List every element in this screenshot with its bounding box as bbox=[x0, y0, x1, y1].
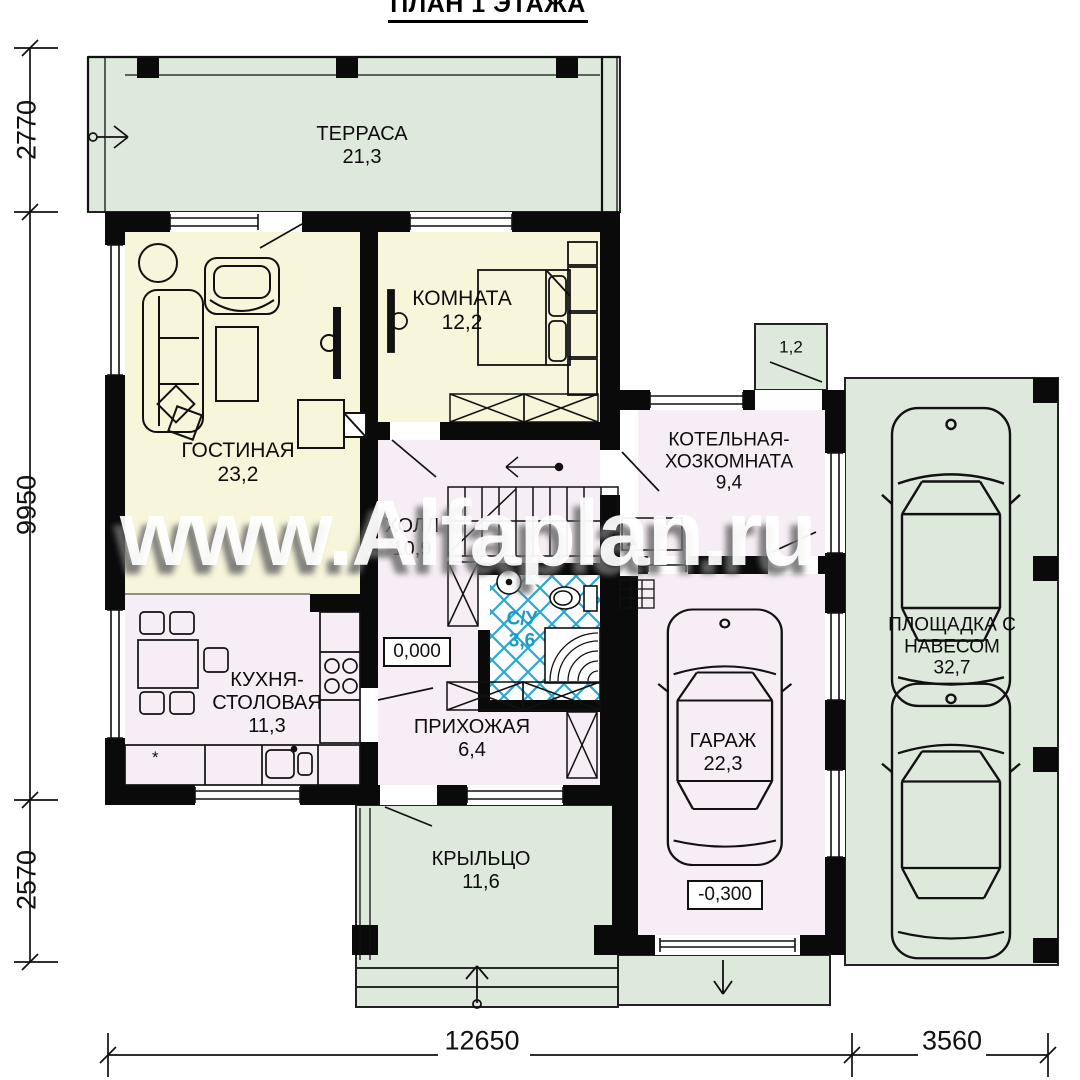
appliance-symbol: * bbox=[152, 748, 159, 768]
garage-apron-area bbox=[618, 955, 830, 1005]
dimension-bottom-carport: 3560 bbox=[922, 1026, 982, 1057]
dimension-bottom-main: 12650 bbox=[444, 1026, 519, 1057]
carport-column bbox=[1033, 556, 1058, 581]
room-label-bathroom: С/У 3,6 bbox=[507, 608, 538, 651]
room-label-bedroom: КОМНАТА 12,2 bbox=[412, 287, 512, 335]
porch-column bbox=[352, 925, 378, 955]
shower-icon bbox=[545, 628, 600, 683]
room-label-garage: ГАРАЖ 22,3 bbox=[690, 730, 757, 776]
carport-column bbox=[1033, 378, 1058, 403]
carport-column bbox=[1033, 938, 1058, 963]
room-label-stoop: 1,2 bbox=[779, 337, 803, 356]
room-label-porch: КРЫЛЬЦО 11,6 bbox=[432, 848, 531, 894]
toilet-tank bbox=[584, 586, 597, 611]
elevation-mark-ground: 0,000 bbox=[383, 637, 451, 667]
floor-plan-canvas: ПЛАН 1 ЭТАЖА ТЕРРАСА 21,3 ГОСТИНАЯ 23,2 … bbox=[0, 0, 1080, 1080]
page-title: ПЛАН 1 ЭТАЖА bbox=[388, 0, 588, 23]
dimension-left-middle: 9950 bbox=[12, 475, 43, 535]
watermark: www.Alfaplan.ru bbox=[120, 480, 815, 587]
room-label-kitchen: КУХНЯ-СТОЛОВАЯ 11,3 bbox=[201, 669, 333, 737]
room-label-entry: ПРИХОЖАЯ 6,4 bbox=[414, 716, 530, 762]
room-label-terrace: ТЕРРАСА 21,3 bbox=[316, 123, 407, 169]
room-label-carport: ПЛОЩАДКА С НАВЕСОМ 32,7 bbox=[841, 615, 1063, 680]
dimension-left-bottom: 2570 bbox=[12, 850, 43, 910]
carport-column bbox=[1033, 747, 1058, 772]
elevation-mark-garage: -0,300 bbox=[687, 880, 763, 910]
dimension-left-top: 2770 bbox=[12, 100, 43, 160]
porch-column bbox=[594, 925, 620, 955]
